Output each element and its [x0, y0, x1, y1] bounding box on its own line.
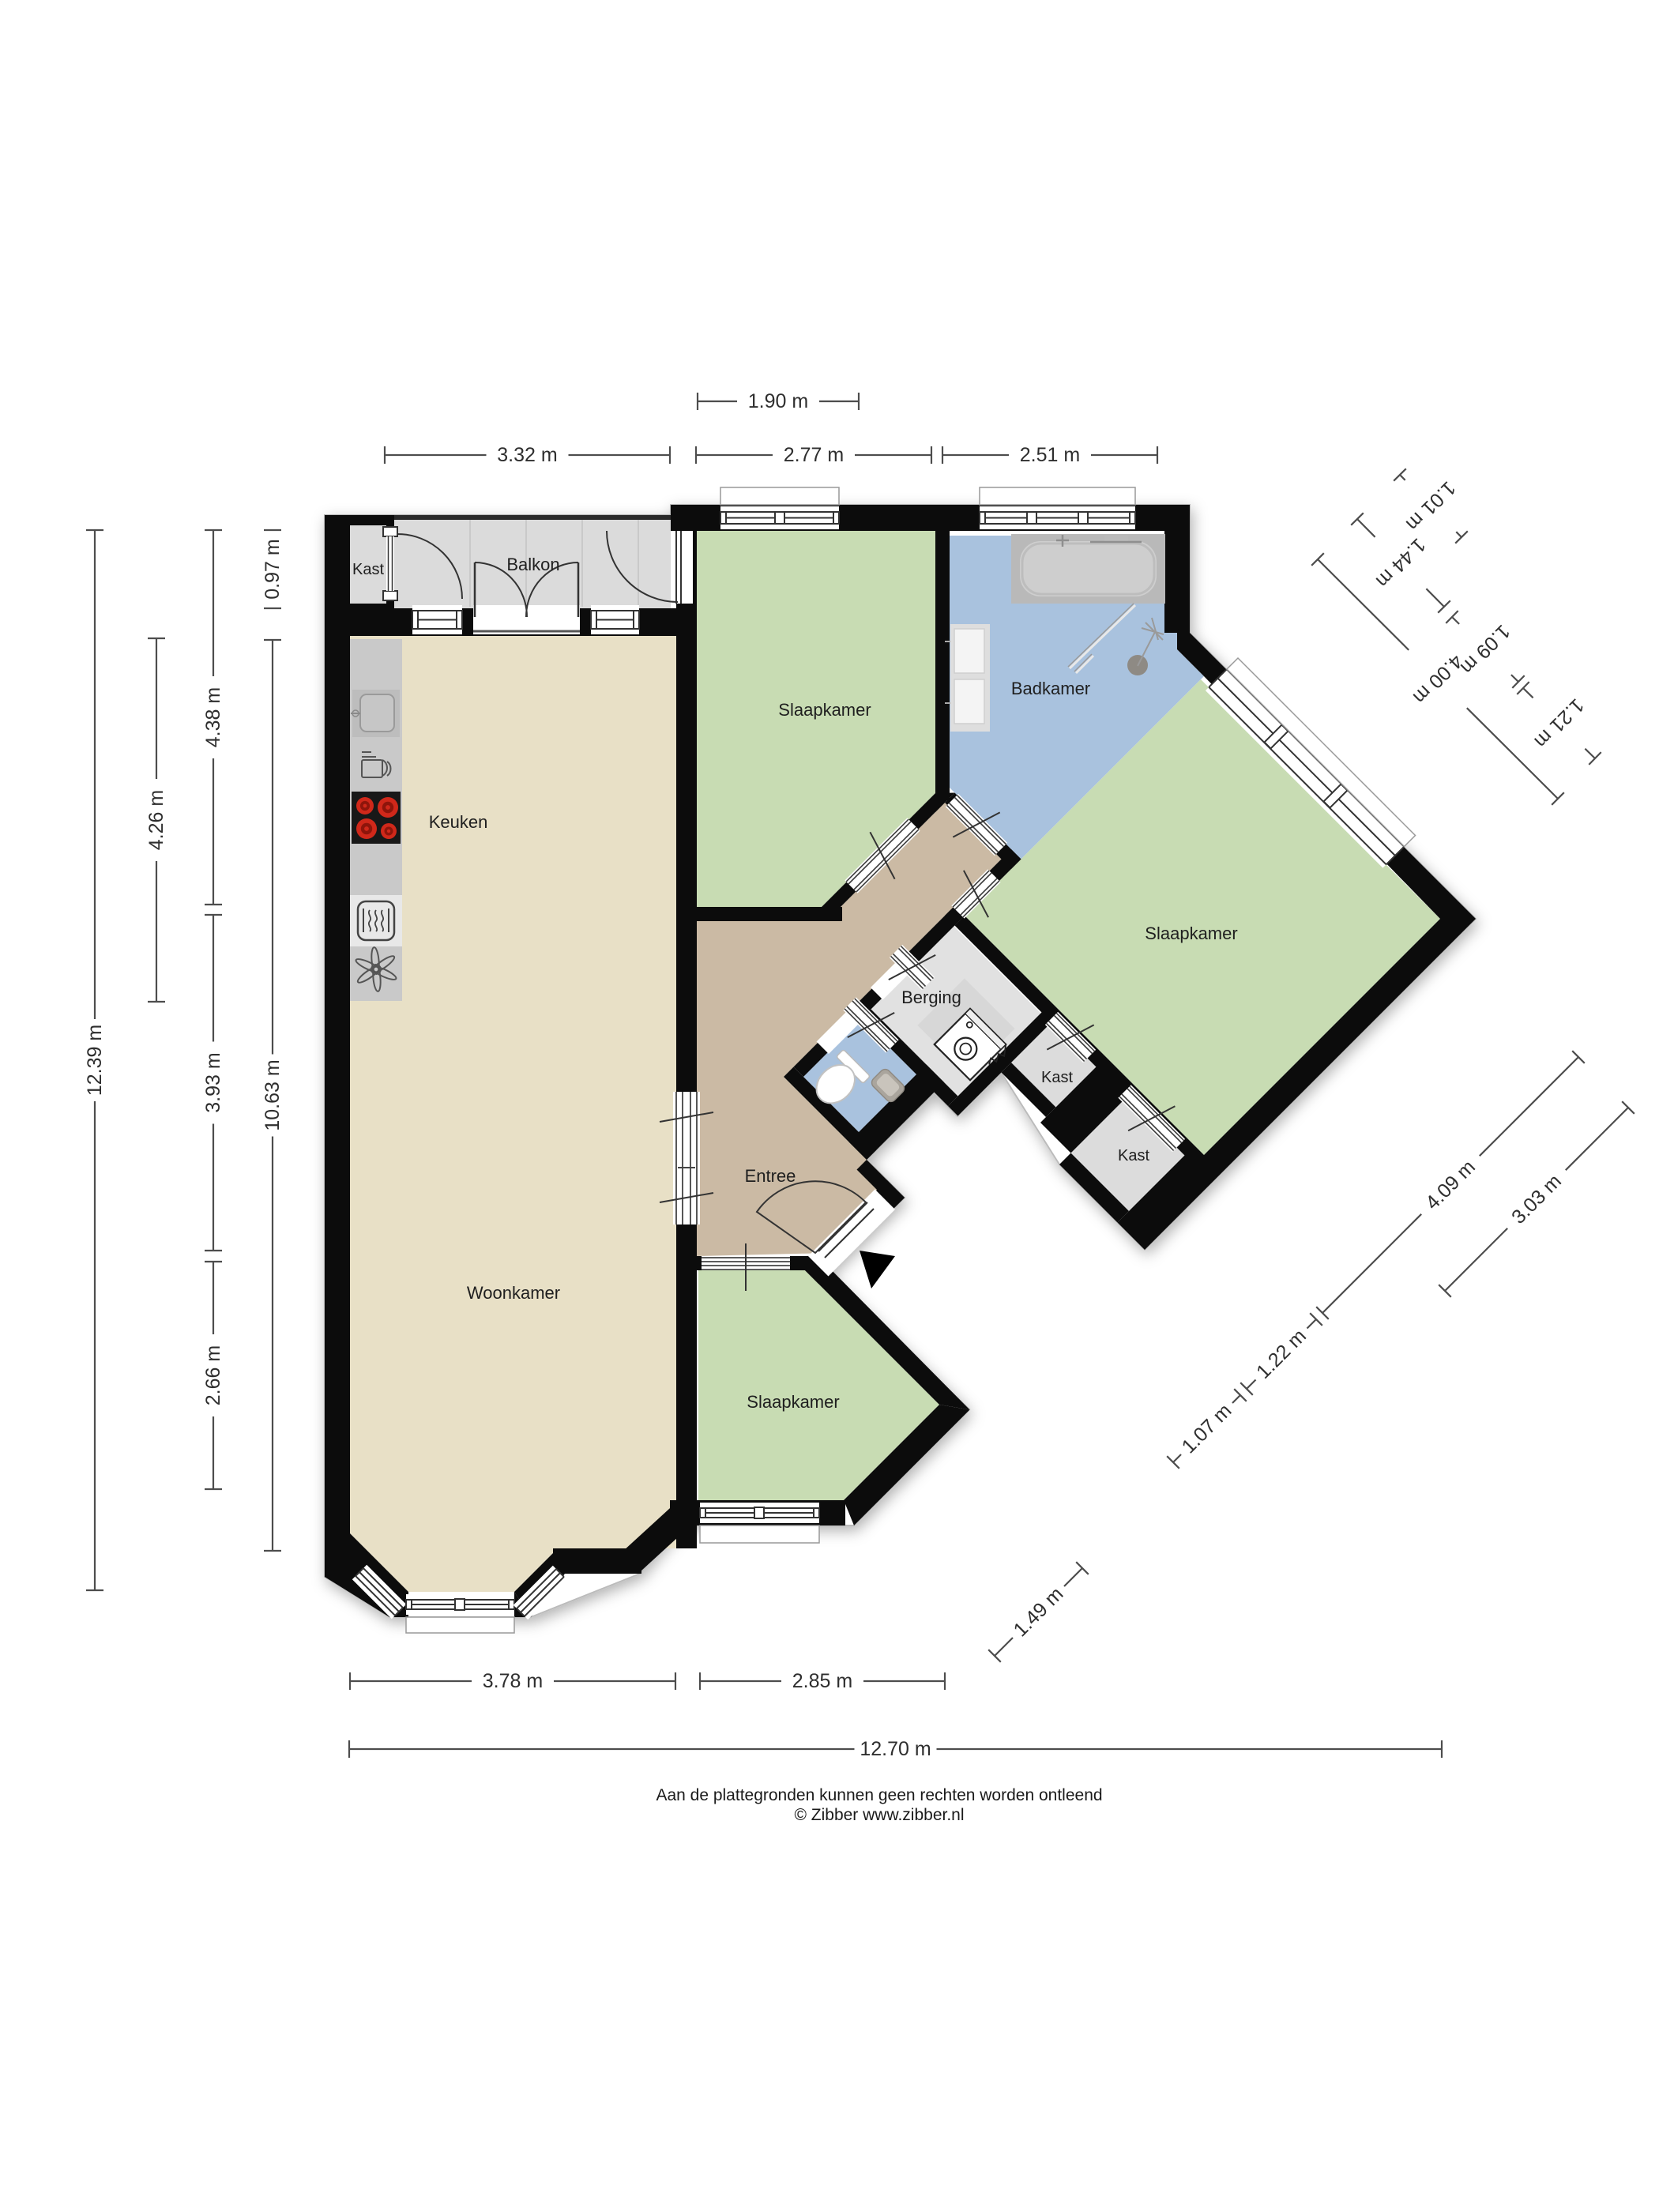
svg-text:Slaapkamer: Slaapkamer [747, 1392, 839, 1412]
svg-text:2.66 m: 2.66 m [202, 1345, 224, 1405]
svg-text:0.97 m: 0.97 m [261, 539, 284, 599]
svg-text:Slaapkamer: Slaapkamer [778, 700, 871, 720]
svg-text:Keuken: Keuken [429, 812, 488, 832]
svg-text:Slaapkamer: Slaapkamer [1145, 924, 1237, 943]
svg-text:12.39 m: 12.39 m [84, 1025, 106, 1096]
svg-text:10.63 m: 10.63 m [261, 1059, 284, 1130]
svg-text:Kast: Kast [1118, 1147, 1149, 1164]
svg-text:3.32 m: 3.32 m [497, 444, 557, 466]
svg-text:1.90 m: 1.90 m [748, 390, 808, 412]
svg-text:2.85 m: 2.85 m [792, 1670, 852, 1692]
svg-text:Entree: Entree [745, 1166, 796, 1186]
svg-text:4.38 m: 4.38 m [202, 687, 224, 747]
svg-text:Woonkamer: Woonkamer [467, 1283, 560, 1303]
svg-text:2.51 m: 2.51 m [1020, 444, 1080, 466]
svg-text:© Zibber www.zibber.nl: © Zibber www.zibber.nl [794, 1806, 964, 1824]
svg-text:12.70 m: 12.70 m [860, 1738, 931, 1760]
svg-text:Badkamer: Badkamer [1011, 679, 1090, 698]
svg-text:4.26 m: 4.26 m [145, 790, 167, 850]
svg-text:Aan de plattegronden kunnen ge: Aan de plattegronden kunnen geen rechten… [656, 1786, 1102, 1804]
svg-text:2.77 m: 2.77 m [784, 444, 844, 466]
svg-text:3.93 m: 3.93 m [202, 1052, 224, 1112]
svg-text:Kast: Kast [1041, 1069, 1073, 1086]
svg-text:Kast: Kast [352, 561, 384, 578]
svg-text:Balkon: Balkon [506, 555, 559, 574]
svg-text:3.78 m: 3.78 m [483, 1670, 543, 1692]
svg-text:Berging: Berging [901, 987, 961, 1007]
